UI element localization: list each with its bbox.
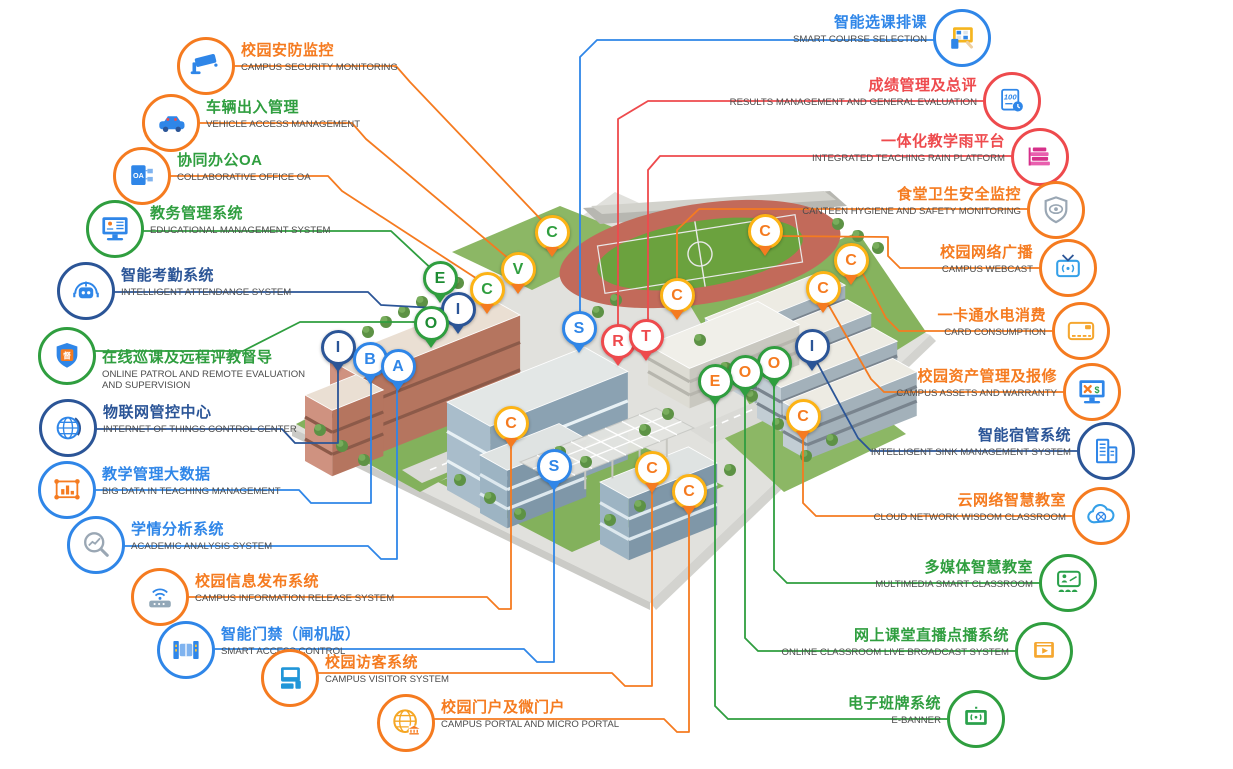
- label-intelligent-sink-management[interactable]: 智能宿管系统INTELLIGENT SINK MANAGEMENT SYSTEM: [871, 422, 1135, 480]
- pin-tail-icon: [331, 362, 345, 372]
- label-text: 教学管理大数据BIG DATA IN TEACHING MANAGEMENT: [102, 461, 281, 497]
- iot-globe-icon: [39, 399, 97, 457]
- label-subtitle-en: CANTEEN HYGIENE AND SAFETY MONITORING: [802, 206, 1021, 217]
- pin-tail-icon: [758, 246, 772, 256]
- multimedia-screen-icon: [1039, 554, 1097, 612]
- label-online-classroom-broadcast[interactable]: 网上课堂直播点播系统ONLINE CLASSROOM LIVE BROADCAS…: [782, 622, 1073, 680]
- pin-letter: C: [494, 406, 529, 441]
- map-pin-e[interactable]: E: [697, 364, 733, 406]
- label-subtitle-en: VEHICLE ACCESS MANAGEMENT: [206, 119, 360, 130]
- label-title-zh: 成绩管理及总评: [730, 78, 977, 95]
- pin-tail-icon: [545, 247, 559, 257]
- label-text: 一卡通水电消费CARD CONSUMPTION: [937, 302, 1046, 338]
- label-title-zh: 食堂卫生安全监控: [802, 187, 1021, 204]
- svg-text:100: 100: [1004, 93, 1018, 102]
- pin-tail-icon: [796, 431, 810, 441]
- label-subtitle-en: INTELLIGENT SINK MANAGEMENT SYSTEM: [871, 447, 1071, 458]
- pin-tail-icon: [572, 343, 586, 353]
- broadcast-play-icon: [1015, 622, 1073, 680]
- label-title-zh: 网上课堂直播点播系统: [782, 628, 1009, 645]
- label-multimedia-smart-classroom[interactable]: 多媒体智慧教室MULTIMEDIA SMART CLASSROOM: [875, 554, 1097, 612]
- pin-tail-icon: [451, 324, 465, 334]
- map-pin-c[interactable]: C: [805, 271, 841, 313]
- label-text: 云网络智慧教室CLOUD NETWORK WISDOM CLASSROOM: [874, 487, 1066, 523]
- pin-tail-icon: [670, 310, 684, 320]
- label-text: 智能宿管系统INTELLIGENT SINK MANAGEMENT SYSTEM: [871, 422, 1071, 458]
- label-subtitle-en: SMART COURSE SELECTION: [793, 34, 927, 45]
- map-pin-c[interactable]: C: [671, 474, 707, 516]
- svg-text:OA: OA: [133, 171, 144, 180]
- label-title-zh: 校园资产管理及报修: [896, 369, 1057, 386]
- pin-letter: C: [660, 278, 695, 313]
- pin-letter: C: [535, 215, 570, 250]
- label-collaborative-office-oa[interactable]: OA协同办公OACOLLABORATIVE OFFICE OA: [113, 147, 311, 205]
- label-online-patrol-supervision[interactable]: 督在线巡课及远程评教督导ONLINE PATROL AND REMOTE EVA…: [38, 327, 324, 391]
- attendance-robot-icon: [57, 262, 115, 320]
- label-text: 车辆出入管理VEHICLE ACCESS MANAGEMENT: [206, 94, 360, 130]
- label-title-zh: 校园信息发布系统: [195, 574, 394, 591]
- pin-tail-icon: [391, 381, 405, 391]
- canteen-shield-icon: [1027, 181, 1085, 239]
- label-text: 校园信息发布系统CAMPUS INFORMATION RELEASE SYSTE…: [195, 568, 394, 604]
- label-subtitle-en: MULTIMEDIA SMART CLASSROOM: [875, 579, 1033, 590]
- pin-letter: I: [795, 329, 830, 364]
- label-vehicle-access-management[interactable]: 车辆出入管理VEHICLE ACCESS MANAGEMENT: [142, 94, 360, 152]
- map-pin-c[interactable]: C: [785, 399, 821, 441]
- label-text: 教务管理系统EDUCATIONAL MANAGEMENT SYSTEM: [150, 200, 331, 236]
- pin-letter: C: [672, 474, 707, 509]
- label-title-zh: 学情分析系统: [131, 522, 272, 539]
- label-text: 协同办公OACOLLABORATIVE OFFICE OA: [177, 147, 311, 183]
- card-icon: [1052, 302, 1110, 360]
- rain-books-icon: [1011, 128, 1069, 186]
- map-pin-s[interactable]: S: [536, 449, 572, 491]
- pin-tail-icon: [611, 356, 625, 366]
- vehicle-car-icon: [142, 94, 200, 152]
- pin-tail-icon: [844, 275, 858, 285]
- label-text: 校园安防监控CAMPUS SECURITY MONITORING: [241, 37, 398, 73]
- pin-tail-icon: [504, 438, 518, 448]
- label-subtitle-en: ONLINE PATROL AND REMOTE EVALUATION AND …: [102, 369, 324, 392]
- label-subtitle-en: RESULTS MANAGEMENT AND GENERAL EVALUATIO…: [730, 97, 977, 108]
- pin-letter: C: [635, 451, 670, 486]
- label-subtitle-en: INTEGRATED TEACHING RAIN PLATFORM: [812, 153, 1005, 164]
- pin-tail-icon: [805, 361, 819, 371]
- label-subtitle-en: ONLINE CLASSROOM LIVE BROADCAST SYSTEM: [782, 647, 1009, 658]
- pin-letter: V: [501, 252, 536, 287]
- label-subtitle-en: CAMPUS WEBCAST: [940, 264, 1033, 275]
- label-text: 校园门户及微门户CAMPUS PORTAL AND MICRO PORTAL: [441, 694, 619, 730]
- map-pin-c[interactable]: C: [534, 215, 570, 257]
- pin-tail-icon: [816, 303, 830, 313]
- map-pin-v[interactable]: V: [500, 252, 536, 294]
- label-text: 一体化教学雨平台INTEGRATED TEACHING RAIN PLATFOR…: [812, 128, 1005, 164]
- svg-text:督: 督: [63, 350, 71, 360]
- info-router-icon: [131, 568, 189, 626]
- label-card-consumption[interactable]: 一卡通水电消费CARD CONSUMPTION: [937, 302, 1110, 360]
- label-campus-information-release[interactable]: 校园信息发布系统CAMPUS INFORMATION RELEASE SYSTE…: [131, 568, 394, 626]
- label-results-management[interactable]: 成绩管理及总评RESULTS MANAGEMENT AND GENERAL EV…: [730, 72, 1041, 130]
- label-text: 在线巡课及远程评教督导ONLINE PATROL AND REMOTE EVAL…: [102, 327, 324, 391]
- pin-tail-icon: [480, 304, 494, 314]
- cloud-icon: [1072, 487, 1130, 545]
- label-title-zh: 智能宿管系统: [871, 428, 1071, 445]
- label-subtitle-en: INTERNET OF THINGS CONTROL CENTER: [103, 424, 297, 435]
- label-title-zh: 教务管理系统: [150, 206, 331, 223]
- label-text: 网上课堂直播点播系统ONLINE CLASSROOM LIVE BROADCAS…: [782, 622, 1009, 658]
- label-subtitle-en: CARD CONSUMPTION: [937, 327, 1046, 338]
- label-title-zh: 云网络智慧教室: [874, 493, 1066, 510]
- label-subtitle-en: CAMPUS PORTAL AND MICRO PORTAL: [441, 719, 619, 730]
- label-campus-webcast[interactable]: 校园网络广播CAMPUS WEBCAST: [940, 239, 1097, 297]
- label-title-zh: 校园门户及微门户: [441, 700, 619, 717]
- map-pin-c[interactable]: C: [747, 214, 783, 256]
- label-subtitle-en: CLOUD NETWORK WISDOM CLASSROOM: [874, 512, 1066, 523]
- label-title-zh: 物联网管控中心: [103, 405, 297, 422]
- webcast-tv-icon: [1039, 239, 1097, 297]
- map-pin-s[interactable]: S: [561, 311, 597, 353]
- label-subtitle-en: COLLABORATIVE OFFICE OA: [177, 172, 311, 183]
- map-pin-a[interactable]: A: [380, 349, 416, 391]
- label-subtitle-en: E-BANNER: [848, 715, 941, 726]
- pin-letter: C: [748, 214, 783, 249]
- bigdata-chart-icon: [38, 461, 96, 519]
- map-pin-i[interactable]: I: [320, 330, 356, 372]
- pin-letter: E: [698, 364, 733, 399]
- pin-tail-icon: [767, 378, 781, 388]
- label-title-zh: 在线巡课及远程评教督导: [102, 350, 324, 367]
- pin-tail-icon: [547, 481, 561, 491]
- label-subtitle-en: CAMPUS SECURITY MONITORING: [241, 62, 398, 73]
- pin-tail-icon: [363, 374, 377, 384]
- sink-building-icon: [1077, 422, 1135, 480]
- pin-letter: T: [629, 319, 664, 354]
- label-text: 智能考勤系统INTELLIGENT ATTENDANCE SYSTEM: [121, 262, 291, 298]
- pin-letter: C: [786, 399, 821, 434]
- pin-tail-icon: [738, 387, 752, 397]
- label-text: 学情分析系统ACADEMIC ANALYSIS SYSTEM: [131, 516, 272, 552]
- pin-tail-icon: [682, 506, 696, 516]
- label-intelligent-attendance-system[interactable]: 智能考勤系统INTELLIGENT ATTENDANCE SYSTEM: [57, 262, 291, 320]
- label-subtitle-en: INTELLIGENT ATTENDANCE SYSTEM: [121, 287, 291, 298]
- label-title-zh: 一卡通水电消费: [937, 308, 1046, 325]
- score-100-icon: 100: [983, 72, 1041, 130]
- label-smart-course-selection[interactable]: 智能选课排课SMART COURSE SELECTION: [793, 9, 991, 67]
- oa-document-icon: OA: [113, 147, 171, 205]
- pin-tail-icon: [511, 284, 525, 294]
- label-text: 校园资产管理及报修CAMPUS ASSETS AND WARRANTY: [896, 363, 1057, 399]
- patrol-shield-icon: 督: [38, 327, 96, 385]
- label-subtitle-en: CAMPUS ASSETS AND WARRANTY: [896, 388, 1057, 399]
- map-pin-i[interactable]: I: [794, 329, 830, 371]
- pin-letter: E: [423, 261, 458, 296]
- label-academic-analysis-system[interactable]: 学情分析系统ACADEMIC ANALYSIS SYSTEM: [67, 516, 272, 574]
- label-text: 多媒体智慧教室MULTIMEDIA SMART CLASSROOM: [875, 554, 1033, 590]
- label-text: 校园网络广播CAMPUS WEBCAST: [940, 239, 1033, 275]
- label-campus-security-monitoring[interactable]: 校园安防监控CAMPUS SECURITY MONITORING: [177, 37, 398, 95]
- label-e-banner-system[interactable]: 电子班牌系统E-BANNER: [848, 690, 1005, 748]
- portal-globe-icon: [377, 694, 435, 752]
- label-cloud-network-wisdom-classroom[interactable]: 云网络智慧教室CLOUD NETWORK WISDOM CLASSROOM: [874, 487, 1130, 545]
- label-subtitle-en: EDUCATIONAL MANAGEMENT SYSTEM: [150, 225, 331, 236]
- access-gate-icon: [157, 621, 215, 679]
- svg-text:$: $: [1094, 385, 1099, 395]
- label-title-zh: 教学管理大数据: [102, 467, 281, 484]
- label-text: 校园访客系统CAMPUS VISITOR SYSTEM: [325, 649, 449, 685]
- pin-tail-icon: [424, 338, 438, 348]
- pin-tail-icon: [639, 351, 653, 361]
- visitor-monitor-icon: [261, 649, 319, 707]
- label-text: 物联网管控中心INTERNET OF THINGS CONTROL CENTER: [103, 399, 297, 435]
- map-pin-c[interactable]: C: [659, 278, 695, 320]
- edu-monitor-icon: [86, 200, 144, 258]
- label-title-zh: 校园网络广播: [940, 245, 1033, 262]
- label-subtitle-en: ACADEMIC ANALYSIS SYSTEM: [131, 541, 272, 552]
- pin-letter: I: [321, 330, 356, 365]
- assets-monitor-icon: $: [1063, 363, 1121, 421]
- pin-letter: O: [414, 306, 449, 341]
- security-camera-icon: [177, 37, 235, 95]
- label-iot-control-center[interactable]: 物联网管控中心INTERNET OF THINGS CONTROL CENTER: [39, 399, 297, 457]
- label-subtitle-en: BIG DATA IN TEACHING MANAGEMENT: [102, 486, 281, 497]
- label-title-zh: 车辆出入管理: [206, 100, 360, 117]
- pin-letter: S: [537, 449, 572, 484]
- pin-tail-icon: [645, 483, 659, 493]
- label-title-zh: 一体化教学雨平台: [812, 134, 1005, 151]
- pin-letter: C: [806, 271, 841, 306]
- label-text: 成绩管理及总评RESULTS MANAGEMENT AND GENERAL EV…: [730, 72, 977, 108]
- label-text: 智能选课排课SMART COURSE SELECTION: [793, 9, 927, 45]
- map-pin-o[interactable]: O: [413, 306, 449, 348]
- pin-letter: A: [381, 349, 416, 384]
- label-campus-portal[interactable]: 校园门户及微门户CAMPUS PORTAL AND MICRO PORTAL: [377, 694, 619, 752]
- map-pin-t[interactable]: T: [628, 319, 664, 361]
- label-text: 电子班牌系统E-BANNER: [848, 690, 941, 726]
- label-text: 食堂卫生安全监控CANTEEN HYGIENE AND SAFETY MONIT…: [802, 181, 1021, 217]
- label-subtitle-en: CAMPUS VISITOR SYSTEM: [325, 674, 449, 685]
- pin-letter: S: [562, 311, 597, 346]
- label-title-zh: 校园安防监控: [241, 43, 398, 60]
- map-pin-c[interactable]: C: [634, 451, 670, 493]
- label-title-zh: 电子班牌系统: [848, 696, 941, 713]
- label-title-zh: 协同办公OA: [177, 153, 311, 170]
- course-tablet-icon: [933, 9, 991, 67]
- label-campus-assets-warranty[interactable]: 校园资产管理及报修CAMPUS ASSETS AND WARRANTY$: [896, 363, 1121, 421]
- label-title-zh: 校园访客系统: [325, 655, 449, 672]
- label-integrated-teaching-rain-platform[interactable]: 一体化教学雨平台INTEGRATED TEACHING RAIN PLATFOR…: [812, 128, 1069, 186]
- label-title-zh: 智能门禁（闸机版）: [221, 627, 361, 644]
- map-pin-c[interactable]: C: [493, 406, 529, 448]
- pin-tail-icon: [708, 396, 722, 406]
- label-title-zh: 多媒体智慧教室: [875, 560, 1033, 577]
- label-subtitle-en: CAMPUS INFORMATION RELEASE SYSTEM: [195, 593, 394, 604]
- label-educational-management-system[interactable]: 教务管理系统EDUCATIONAL MANAGEMENT SYSTEM: [86, 200, 331, 258]
- label-big-data-teaching[interactable]: 教学管理大数据BIG DATA IN TEACHING MANAGEMENT: [38, 461, 281, 519]
- label-title-zh: 智能选课排课: [793, 15, 927, 32]
- label-title-zh: 智能考勤系统: [121, 268, 291, 285]
- ebanner-screen-icon: [947, 690, 1005, 748]
- label-canteen-hygiene-monitoring[interactable]: 食堂卫生安全监控CANTEEN HYGIENE AND SAFETY MONIT…: [802, 181, 1085, 239]
- smart-campus-diagram: CVCEIOIBASRTCCCCIOOECCSCC校园安防监控CAMPUS SE…: [0, 0, 1233, 769]
- academic-magnifier-icon: [67, 516, 125, 574]
